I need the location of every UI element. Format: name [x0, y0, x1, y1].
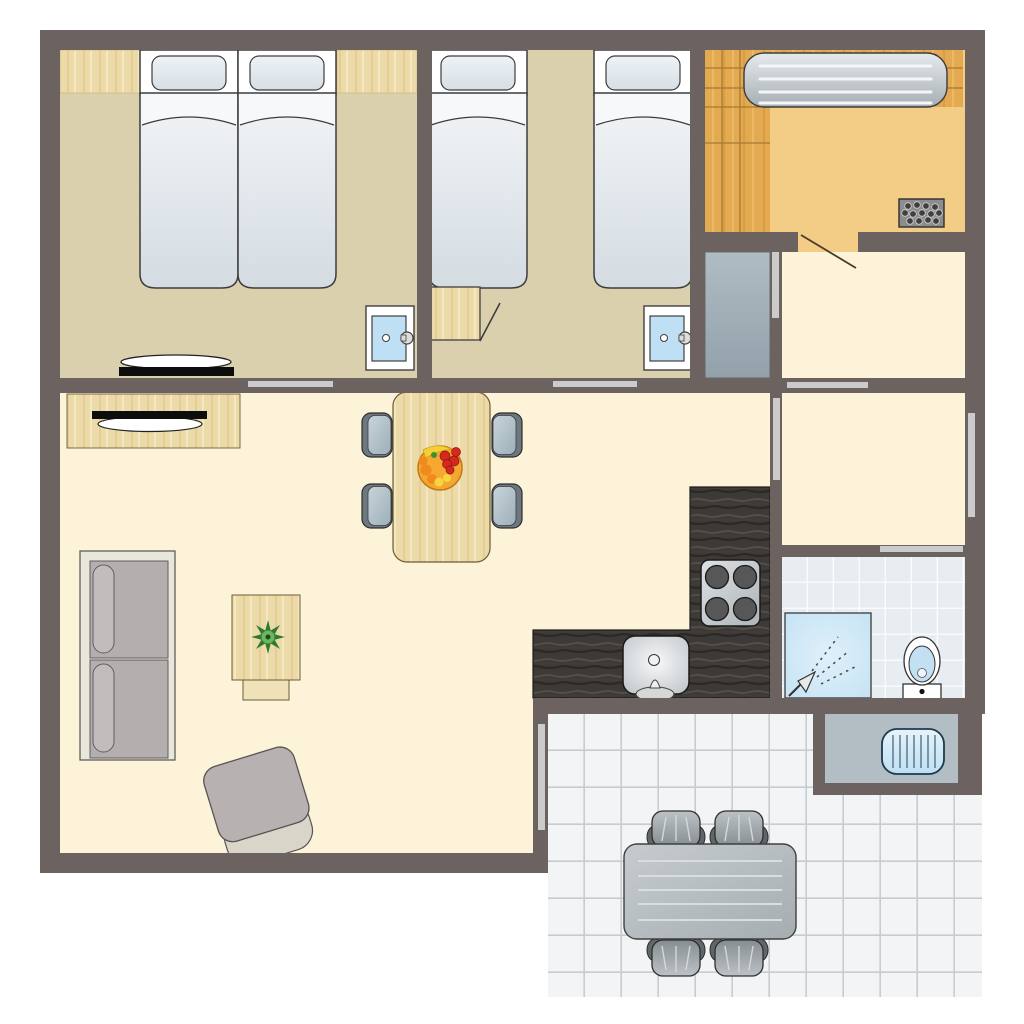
- wardrobe-strip-left: [60, 50, 143, 93]
- hallway-upper-floor: [782, 252, 965, 378]
- sofa: [80, 551, 175, 760]
- wall-left: [40, 30, 60, 873]
- closet-wood: [430, 287, 480, 340]
- bed-twin-right: [594, 50, 692, 288]
- heater-unit-icon: [882, 729, 944, 774]
- washbasin-bedroom-twin: [644, 306, 692, 370]
- door-terrace: [538, 724, 545, 830]
- sink-icon: [623, 636, 689, 701]
- washbasin-bedroom-double: [366, 306, 414, 370]
- sofa-back-cushion: [93, 565, 114, 653]
- bed-twin-left: [429, 50, 527, 288]
- outdoor-storage: [825, 714, 958, 783]
- shower-tray: [785, 613, 871, 698]
- wall-right: [965, 30, 985, 714]
- door-bedroom-double: [248, 381, 333, 387]
- door-bedroom-twin: [553, 381, 637, 387]
- wall-sauna-bottom-left: [705, 232, 798, 252]
- floor-plan-drawing: [0, 0, 1024, 1024]
- sauna-doorway: [798, 232, 858, 252]
- wall-top: [40, 30, 985, 50]
- wall-bedroom-sauna: [690, 50, 705, 393]
- outdoor-chair: [710, 939, 768, 976]
- wall-sauna-bottom-right: [858, 232, 965, 252]
- outdoor-chair: [710, 811, 768, 848]
- stove-icon: [701, 560, 760, 626]
- bed-double-left: [140, 50, 238, 288]
- sideboard-with-tv: [67, 394, 240, 448]
- plant-icon: [251, 620, 285, 654]
- wall-storage-left: [813, 714, 825, 795]
- outdoor-table: [624, 844, 796, 939]
- door-kitchen-hall: [773, 398, 780, 480]
- outdoor-chair: [647, 811, 705, 848]
- toilet-icon: [903, 637, 941, 699]
- wall-storage-bottom: [813, 783, 982, 795]
- door-bathroom: [880, 546, 963, 552]
- window-hallway: [968, 413, 975, 517]
- dining-chair: [492, 484, 522, 528]
- dining-chair: [362, 413, 392, 457]
- fruit-bowl-icon: [418, 446, 462, 490]
- door-hall-closet: [772, 252, 779, 318]
- wardrobe-strip-right: [337, 50, 417, 93]
- dining-chair: [362, 484, 392, 528]
- dining-chair: [492, 413, 522, 457]
- hall-closet: [705, 252, 770, 378]
- floor-plan: [0, 0, 1024, 1024]
- wall-bottom-living: [40, 853, 548, 873]
- outdoor-chair: [647, 939, 705, 976]
- wall-bedroom-divider: [417, 50, 432, 393]
- hallway-lower-floor: [782, 393, 965, 545]
- bed-double-right: [238, 50, 336, 288]
- sauna-heater-icon: [899, 199, 944, 227]
- door-hallway: [787, 382, 868, 388]
- wall-bath-bottom: [533, 698, 985, 714]
- sofa-back-cushion: [93, 664, 114, 752]
- wall-shelf: [119, 355, 234, 376]
- wall-storage-right: [958, 714, 982, 795]
- tv-screen: [92, 411, 207, 419]
